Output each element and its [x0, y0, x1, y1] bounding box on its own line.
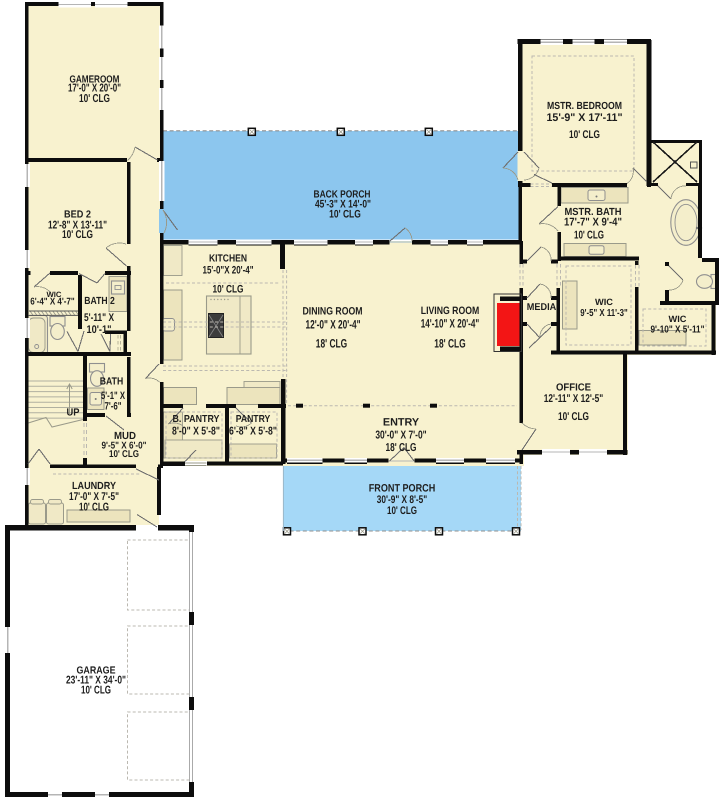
svg-text:5'-11" X: 5'-11" X	[84, 312, 114, 324]
svg-text:DINING ROOM: DINING ROOM	[303, 306, 363, 318]
svg-text:10' CLG: 10' CLG	[329, 209, 361, 221]
svg-text:14'-10" X 20'-4": 14'-10" X 20'-4"	[421, 317, 479, 331]
svg-text:BATH: BATH	[100, 376, 123, 387]
svg-text:12'-11" X 12'-5": 12'-11" X 12'-5"	[544, 393, 604, 405]
svg-text:12'-0" X 20'-4": 12'-0" X 20'-4"	[306, 317, 361, 331]
svg-text:10' CLG: 10' CLG	[213, 284, 244, 296]
svg-text:10' CLG: 10' CLG	[387, 505, 417, 517]
svg-text:10'-1": 10'-1"	[87, 324, 112, 336]
svg-text:ENTRY: ENTRY	[383, 417, 419, 429]
svg-text:6'-4" X 4'-7": 6'-4" X 4'-7"	[30, 297, 75, 308]
svg-text:BATH 2: BATH 2	[84, 296, 115, 307]
svg-text:10' CLG: 10' CLG	[109, 449, 139, 460]
svg-text:10' CLG: 10' CLG	[81, 685, 111, 697]
svg-text:18' CLG: 18' CLG	[434, 337, 465, 351]
svg-text:30'-0" X 7'-0": 30'-0" X 7'-0"	[375, 429, 426, 441]
svg-text:UP: UP	[67, 408, 80, 419]
svg-text:KITCHEN: KITCHEN	[209, 253, 247, 264]
svg-text:9'-10" X 5'-11": 9'-10" X 5'-11"	[651, 324, 705, 335]
svg-text:18' CLG: 18' CLG	[316, 336, 347, 350]
svg-text:MSTR. BEDROOM: MSTR. BEDROOM	[547, 101, 622, 112]
svg-text:10' CLG: 10' CLG	[574, 230, 604, 242]
svg-text:8'-0" X 5'-8": 8'-0" X 5'-8"	[172, 426, 220, 438]
svg-text:WIC: WIC	[595, 297, 613, 307]
svg-text:6'-8" X 5'-8": 6'-8" X 5'-8"	[229, 426, 277, 438]
svg-text:MEDIA: MEDIA	[527, 302, 557, 313]
svg-text:B. PANTRY: B. PANTRY	[173, 414, 220, 425]
svg-text:9'-5" X 11'-3": 9'-5" X 11'-3"	[580, 308, 628, 319]
svg-text:7'-6": 7'-6"	[105, 401, 122, 413]
svg-text:18' CLG: 18' CLG	[386, 442, 417, 454]
svg-text:LIVING ROOM: LIVING ROOM	[421, 305, 480, 317]
svg-text:15'-9" X 17'-11": 15'-9" X 17'-11"	[547, 112, 623, 124]
svg-text:10' CLG: 10' CLG	[569, 129, 600, 141]
svg-text:PANTRY: PANTRY	[236, 414, 271, 425]
svg-text:FRONT PORCH: FRONT PORCH	[369, 483, 436, 495]
svg-text:10' CLG: 10' CLG	[558, 411, 589, 423]
svg-text:17'-7" X 9'-4": 17'-7" X 9'-4"	[564, 216, 622, 228]
svg-text:WIC: WIC	[669, 314, 687, 324]
svg-text:10' CLG: 10' CLG	[79, 93, 110, 105]
svg-text:10' CLG: 10' CLG	[62, 229, 93, 241]
svg-text:15'-0"X 20'-4": 15'-0"X 20'-4"	[203, 265, 254, 277]
svg-text:10' CLG: 10' CLG	[79, 502, 109, 514]
